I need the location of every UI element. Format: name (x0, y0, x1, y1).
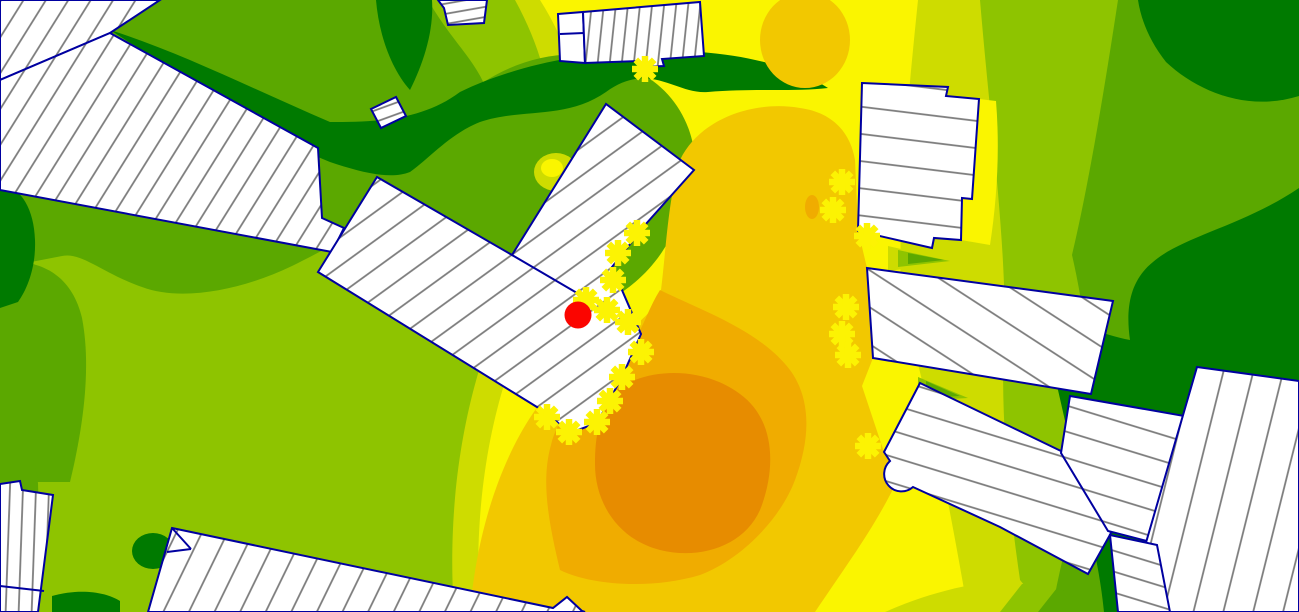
contour-region-orange-spot (805, 195, 819, 219)
receiver-marker[interactable] (820, 197, 846, 223)
receiver-marker[interactable] (584, 409, 610, 435)
receiver-marker[interactable] (628, 339, 654, 365)
building-upper-right[interactable] (858, 83, 979, 248)
receiver-marker[interactable] (597, 388, 623, 414)
receiver-marker[interactable] (632, 56, 658, 82)
receiver-marker[interactable] (600, 267, 626, 293)
receiver-marker[interactable] (609, 364, 635, 390)
receiver-marker[interactable] (833, 294, 859, 320)
source-point-marker[interactable] (565, 302, 592, 329)
noise-map-viewport (0, 0, 1299, 612)
noise-map-canvas (0, 0, 1299, 612)
receiver-marker[interactable] (615, 309, 641, 335)
receiver-marker[interactable] (855, 433, 881, 459)
contour-region-yellow-spot (541, 159, 563, 177)
building-top-annex[interactable] (558, 12, 585, 63)
receiver-marker[interactable] (534, 404, 560, 430)
receiver-marker[interactable] (556, 419, 582, 445)
receiver-marker[interactable] (605, 240, 631, 266)
receiver-marker[interactable] (854, 223, 880, 249)
receiver-marker[interactable] (624, 220, 650, 246)
annex-divider (560, 33, 584, 34)
receiver-marker[interactable] (829, 169, 855, 195)
receiver-marker[interactable] (835, 342, 861, 368)
